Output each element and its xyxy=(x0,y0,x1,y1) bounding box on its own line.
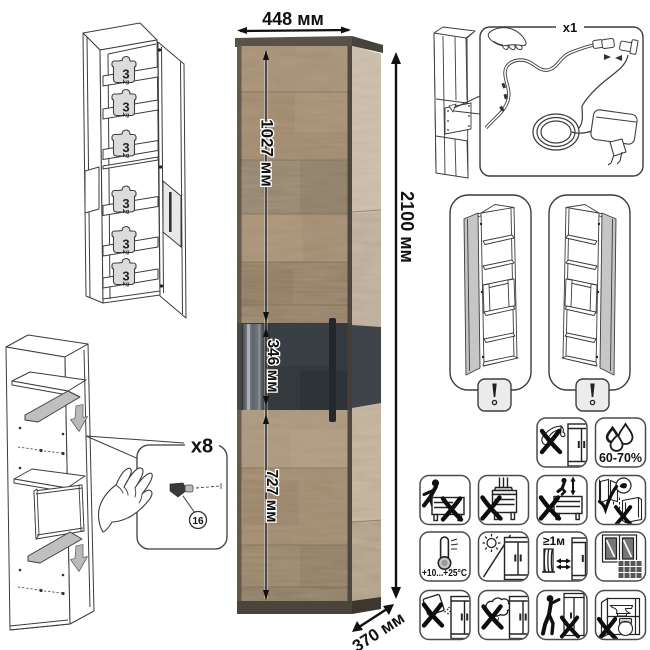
svg-text:448 мм: 448 мм xyxy=(262,9,324,29)
svg-text:2100 мм: 2100 мм xyxy=(397,191,417,263)
svg-text:x8: x8 xyxy=(191,436,213,458)
svg-text:≥1м: ≥1м xyxy=(543,534,565,548)
svg-text:346 мм: 346 мм xyxy=(264,339,281,392)
svg-text:x1: x1 xyxy=(563,20,577,35)
svg-text:727 мм: 727 мм xyxy=(263,469,280,522)
svg-text:1027 мм: 1027 мм xyxy=(258,119,277,187)
svg-text:+10...+25°С: +10...+25°С xyxy=(422,567,467,579)
svg-text:60-70%: 60-70% xyxy=(599,451,642,465)
svg-text:16: 16 xyxy=(192,516,204,527)
